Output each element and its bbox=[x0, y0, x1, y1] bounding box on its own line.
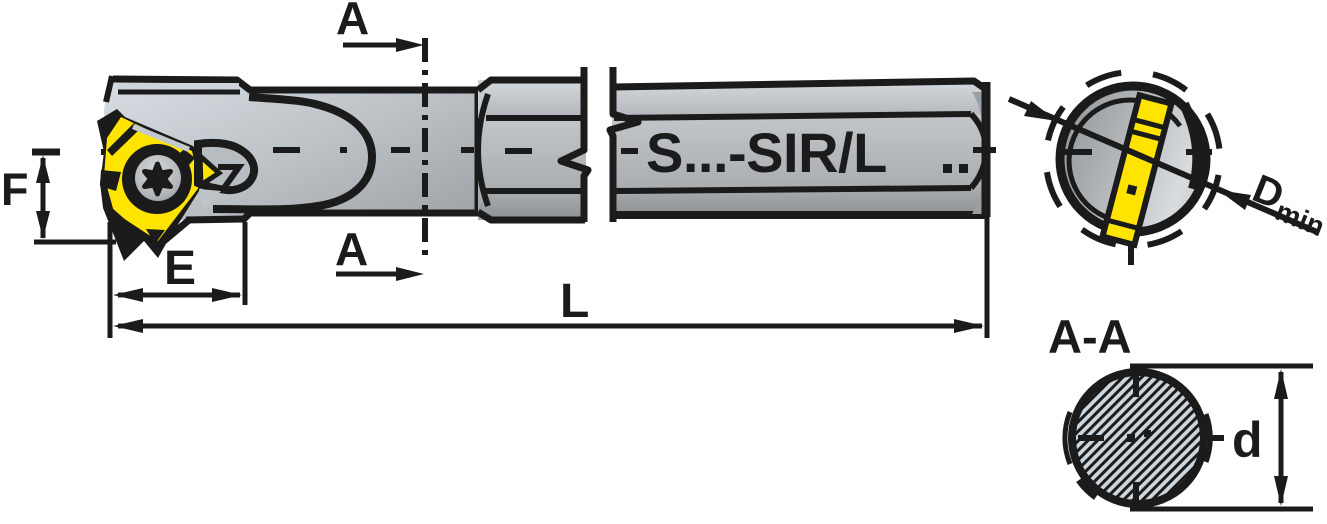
svg-text:E: E bbox=[164, 242, 196, 295]
svg-text:L: L bbox=[560, 275, 589, 328]
svg-text:A: A bbox=[336, 0, 369, 44]
svg-text:d: d bbox=[1232, 412, 1263, 468]
svg-text:A: A bbox=[335, 223, 368, 275]
svg-text:F: F bbox=[1, 164, 29, 215]
svg-text:A-A: A-A bbox=[1048, 310, 1132, 363]
svg-text:S...-SIR/L: S...-SIR/L bbox=[646, 121, 887, 184]
